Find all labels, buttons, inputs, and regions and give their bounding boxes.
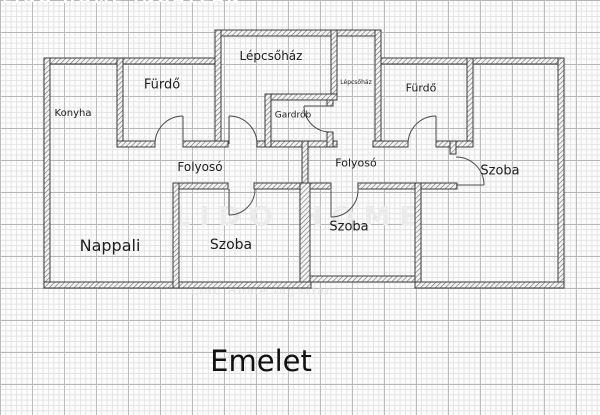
wall-outer-right xyxy=(558,58,564,288)
door-arc-szoba-center xyxy=(229,189,255,215)
room-label-szoba-mid: Szoba xyxy=(329,221,368,234)
wall-furdo-left-south-b xyxy=(183,141,228,147)
door-arc-lepcsohaz xyxy=(229,116,257,144)
room-label-gardrob: Gardrób xyxy=(275,112,311,121)
wall-stairbox-east xyxy=(331,30,337,100)
wall-gardrob-east-a xyxy=(327,100,333,106)
wall-szoba2-east xyxy=(415,183,421,282)
wall-bottom-center xyxy=(301,276,421,282)
wall-szoba1-north-b xyxy=(254,183,331,189)
page-title: Emelet xyxy=(210,344,312,378)
room-label-furdo-right: Fürdő xyxy=(406,83,437,94)
wall-furdo-left-west xyxy=(117,58,123,147)
wall-unit-divider-upper xyxy=(302,141,308,183)
wall-stairbox-top xyxy=(215,30,381,36)
wall-top-left xyxy=(44,58,221,64)
wall-jog-a xyxy=(450,141,456,154)
wall-furdo-right-east xyxy=(467,58,473,147)
room-label-lepcsohaz-small: Lépcsőház xyxy=(340,80,371,86)
wall-gardrob-north xyxy=(265,94,337,100)
floorplan-canvas: LIDO HOME INGATLAN LIDO HOME Lido Home I… xyxy=(0,0,600,415)
door-arc-szoba-mid xyxy=(331,190,358,217)
wall-furdo-right-south-a xyxy=(373,141,408,147)
room-label-folyoso-right: Folyosó xyxy=(335,158,376,169)
wall-szoba2-north xyxy=(358,183,457,189)
wall-bottom-right xyxy=(415,282,564,288)
wall-gardrob-west xyxy=(265,94,271,147)
room-label-szoba-center: Szoba xyxy=(210,238,252,252)
wall-szoba1-north-a xyxy=(173,183,228,189)
room-label-nappali: Nappali xyxy=(80,238,141,254)
wall-stairbox-west xyxy=(215,30,221,147)
door-arc-furdo-right xyxy=(408,116,436,144)
wall-furdo-left-south-a xyxy=(117,141,155,147)
room-label-folyoso-left: Folyosó xyxy=(177,161,222,173)
room-label-lepcsohaz: Lépcsőház xyxy=(240,50,303,62)
room-label-furdo-left: Fürdő xyxy=(144,79,180,92)
wall-unit-divider-lower xyxy=(300,183,310,282)
wall-gardrob-east-b xyxy=(327,132,333,147)
room-label-konyha: Konyha xyxy=(55,109,92,119)
wall-nappali-east xyxy=(173,183,179,288)
wall-outer-left xyxy=(44,58,50,288)
wall-strip-east xyxy=(375,30,381,147)
room-label-szoba-right: Szoba xyxy=(480,165,519,178)
door-arc-furdo-left xyxy=(155,116,183,144)
